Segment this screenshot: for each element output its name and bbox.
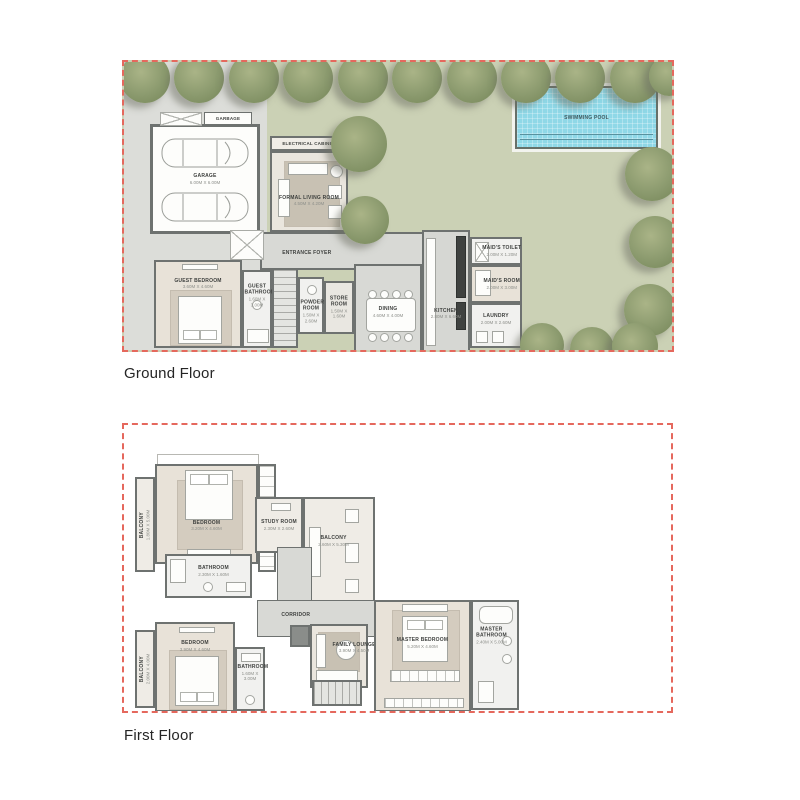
room-name: ELECTRICAL CABINET bbox=[282, 141, 335, 146]
room-maids-room: MAID'S ROOM 2.00M X 3.00M bbox=[470, 265, 522, 303]
room-balcony-bottom: BALCONY 2.00M X 4.00M bbox=[135, 630, 155, 708]
headboard-shelf bbox=[402, 604, 448, 612]
room-name: MASTER BEDROOM bbox=[397, 637, 448, 643]
room-dims: 2.40M X 5.00M bbox=[470, 639, 512, 645]
room-label: BALCONY 1.80M X 5.00M bbox=[139, 509, 151, 540]
room-bathroom-top: BATHROOM 2.30M X 1.60M bbox=[165, 554, 252, 598]
pool-lane-line bbox=[520, 134, 653, 135]
tree-icon bbox=[447, 60, 497, 103]
pillow bbox=[183, 330, 200, 340]
side-table bbox=[330, 165, 343, 178]
room-label: DINING 4.60M X 4.00M bbox=[373, 306, 404, 318]
room-garage: GARAGE 6.00M X 6.00M bbox=[150, 124, 260, 234]
room-label: BEDROOM 3.90M X 4.60M bbox=[180, 640, 211, 652]
room-label: GUEST BEDROOM 3.60M X 4.60M bbox=[174, 278, 221, 290]
first-floor-caption: First Floor bbox=[124, 727, 194, 744]
room-family-lounge: FAMILY LOUNGE 3.90M X 4.50M bbox=[310, 624, 368, 688]
room-kitchen: KITCHEN 2.80M X 6.60M bbox=[422, 230, 470, 352]
room-label: MASTER BATHROOM 2.40M X 5.00M bbox=[470, 626, 512, 645]
tree-icon bbox=[392, 60, 442, 103]
room-name: BATHROOM bbox=[238, 664, 269, 670]
ff-stairs bbox=[312, 680, 362, 706]
room-dims: 3.90M X 4.50M bbox=[333, 648, 376, 654]
room-label: STORE ROOM 1.50M X 1.60M bbox=[327, 295, 352, 320]
room-name: FORMAL LIVING ROOM bbox=[279, 195, 339, 201]
desk bbox=[271, 503, 291, 511]
room-label: GARAGE 6.00M X 6.00M bbox=[190, 173, 221, 185]
chair bbox=[392, 290, 401, 299]
room-name: FAMILY LOUNGE bbox=[333, 641, 376, 647]
room-name: MAID'S TOILET bbox=[482, 245, 521, 251]
room-dims: 2.60M X 5.30M bbox=[318, 542, 349, 548]
room-label: POWDER ROOM 1.50M X 2.60M bbox=[300, 300, 321, 325]
washer bbox=[476, 331, 488, 343]
tree-icon bbox=[229, 60, 279, 103]
room-label: BATHROOM 1.60M X 3.00M bbox=[238, 664, 263, 682]
room-name: KITCHEN bbox=[434, 307, 458, 313]
pool-label: SWIMMING POOL bbox=[564, 114, 609, 121]
chair bbox=[380, 333, 389, 342]
bed bbox=[185, 470, 233, 520]
tree-icon bbox=[625, 147, 674, 201]
room-dims: 3.60M X 4.60M bbox=[174, 284, 221, 290]
room-store: STORE ROOM 1.50M X 1.60M bbox=[324, 281, 354, 334]
room-label: FAMILY LOUNGE 3.90M X 4.50M bbox=[333, 641, 376, 653]
shower bbox=[478, 681, 494, 703]
tree-icon bbox=[629, 216, 674, 268]
room-master-bathroom: MASTER BATHROOM 2.40M X 5.00M bbox=[471, 600, 519, 710]
bathtub bbox=[479, 606, 513, 624]
dresser bbox=[182, 264, 218, 270]
armchair bbox=[328, 205, 342, 219]
kitchen-cabinets bbox=[456, 236, 466, 298]
pillow bbox=[197, 692, 214, 702]
pillow bbox=[190, 474, 209, 485]
room-name: ENTRANCE FOYER bbox=[282, 249, 331, 255]
room-label: LAUNDRY 2.00M X 2.60M bbox=[481, 313, 512, 325]
bed bbox=[175, 656, 219, 706]
entrance-canopy bbox=[230, 230, 264, 260]
pillow bbox=[425, 620, 443, 630]
room-dining: DINING 4.60M X 4.00M bbox=[354, 264, 422, 352]
room-dims: 4.60M X 4.00M bbox=[373, 313, 404, 319]
room-dims: 2.30M X 1.60M bbox=[198, 572, 229, 578]
bench bbox=[390, 670, 460, 682]
room-label: MAID'S ROOM 2.00M X 3.00M bbox=[484, 278, 520, 290]
tree-icon bbox=[520, 323, 564, 352]
tree-icon bbox=[283, 60, 333, 103]
room-dims: 1.60M X 3.00M bbox=[238, 670, 263, 682]
toilet bbox=[245, 695, 255, 705]
gf-stairs bbox=[272, 268, 298, 348]
chair bbox=[404, 290, 413, 299]
room-dims: 6.00M X 6.00M bbox=[190, 179, 221, 185]
tree-icon bbox=[570, 327, 614, 352]
room-label: GUEST BATHROOM 1.60M X 3.00M bbox=[245, 283, 270, 308]
room-label: ENTRANCE FOYER bbox=[282, 249, 331, 256]
room-dims: 2.00M X 2.60M bbox=[481, 320, 512, 326]
room-dims: 2.80M X 6.60M bbox=[431, 314, 462, 320]
room-name: BEDROOM bbox=[181, 640, 209, 646]
room-bathroom-bottom: BATHROOM 1.60M X 3.00M bbox=[235, 647, 265, 711]
room-dims: 4.50M X 4.20M bbox=[279, 201, 339, 207]
room-bedroom-bottom: BEDROOM 3.90M X 4.60M bbox=[155, 622, 235, 712]
room-label: FORMAL LIVING ROOM 4.50M X 4.20M bbox=[279, 195, 339, 207]
sofa bbox=[316, 634, 326, 668]
vanity bbox=[226, 582, 246, 592]
chair bbox=[368, 333, 377, 342]
room-label: KITCHEN 2.80M X 6.60M bbox=[431, 307, 462, 319]
room-label: STUDY ROOM 2.30M X 2.60M bbox=[261, 519, 297, 531]
tree-icon bbox=[331, 116, 387, 172]
room-name: MAID'S ROOM bbox=[484, 278, 520, 284]
room-label: BEDROOM 3.20M X 4.60M bbox=[191, 519, 222, 531]
pillow bbox=[180, 692, 197, 702]
pillow bbox=[407, 620, 425, 630]
room-name: BATHROOM bbox=[198, 565, 229, 571]
room-name: GUEST BEDROOM bbox=[174, 278, 221, 284]
room-dims: 2.00M X 1.20M bbox=[482, 251, 521, 257]
room-master-bedroom: MASTER BEDROOM 5.20M X 4.60M bbox=[374, 600, 471, 712]
tree-icon bbox=[338, 60, 388, 103]
first-floor-plan: BALCONY 1.80M X 5.00M BEDROOM 3.20M X 4.… bbox=[122, 423, 673, 713]
sink bbox=[307, 285, 317, 295]
room-name: POWDER ROOM bbox=[300, 300, 324, 313]
chair bbox=[380, 290, 389, 299]
tree-icon bbox=[341, 196, 389, 244]
sink bbox=[502, 654, 512, 664]
bed bbox=[178, 296, 222, 344]
room-name: BALCONY bbox=[139, 656, 145, 682]
shower bbox=[170, 559, 186, 583]
room-label: BALCONY 2.60M X 5.30M bbox=[318, 535, 349, 547]
room-dims: 1.50M X 2.60M bbox=[300, 313, 321, 325]
car-icon bbox=[159, 135, 251, 171]
room-dims: 3.20M X 4.60M bbox=[191, 526, 222, 532]
room-name: BEDROOM bbox=[193, 519, 221, 525]
toilet bbox=[203, 582, 213, 592]
room-dims: 1.50M X 1.60M bbox=[327, 308, 352, 320]
room-name: GARBAGE bbox=[216, 116, 240, 121]
room-name: GARAGE bbox=[193, 173, 216, 179]
room-laundry: LAUNDRY 2.00M X 2.60M bbox=[470, 303, 522, 348]
room-name: MASTER BATHROOM bbox=[476, 626, 507, 639]
room-name: CORRIDOR bbox=[281, 612, 310, 618]
wardrobe-cabinets bbox=[384, 698, 464, 708]
pillow bbox=[209, 474, 228, 485]
bathtub bbox=[247, 329, 269, 343]
room-name: BALCONY bbox=[320, 535, 346, 541]
room-guest-bathroom: GUEST BATHROOM 1.60M X 3.00M bbox=[242, 270, 272, 348]
room-powder: POWDER ROOM 1.50M X 2.60M bbox=[298, 277, 324, 334]
room-label: BALCONY 2.00M X 4.00M bbox=[139, 654, 151, 685]
room-balcony-right: BALCONY 2.60M X 5.30M bbox=[303, 497, 375, 602]
room-label: MASTER BEDROOM 5.20M X 4.60M bbox=[397, 637, 448, 649]
room-name: LAUNDRY bbox=[483, 313, 509, 319]
sofa bbox=[288, 163, 328, 175]
room-name: GUEST BATHROOM bbox=[245, 283, 276, 296]
room-label: MAID'S TOILET 2.00M X 1.20M bbox=[482, 245, 521, 257]
room-study: STUDY ROOM 2.30M X 2.60M bbox=[255, 497, 303, 553]
room-name: BALCONY bbox=[139, 511, 145, 537]
chair bbox=[404, 333, 413, 342]
room-formal-living: FORMAL LIVING ROOM 4.50M X 4.20M bbox=[270, 151, 348, 232]
shaft bbox=[290, 625, 310, 647]
room-maids-toilet: MAID'S TOILET 2.00M X 1.20M bbox=[470, 237, 522, 265]
pillow bbox=[200, 330, 217, 340]
room-dims: 2.00M X 4.00M bbox=[145, 654, 151, 685]
chair bbox=[392, 333, 401, 342]
floor-plan-sheet: SWIMMING POOL GARBAGE GARAGE bbox=[0, 0, 800, 800]
ground-floor-plan: SWIMMING POOL GARBAGE GARAGE bbox=[122, 60, 674, 352]
dresser bbox=[179, 627, 215, 633]
pool-lane-line bbox=[520, 139, 653, 140]
room-dims: 1.80M X 5.00M bbox=[145, 509, 151, 540]
room-dims: 1.60M X 3.00M bbox=[245, 296, 270, 308]
room-bedroom-top: BEDROOM 3.20M X 4.60M bbox=[155, 464, 258, 564]
room-guest-bedroom: GUEST BEDROOM 3.60M X 4.60M bbox=[154, 260, 242, 348]
room-name: DINING bbox=[379, 306, 398, 312]
room-name: STUDY ROOM bbox=[261, 519, 297, 525]
room-label: BATHROOM 2.30M X 1.60M bbox=[198, 565, 229, 577]
room-dims: 2.00M X 3.00M bbox=[484, 284, 520, 290]
room-dims: 3.90M X 4.60M bbox=[180, 647, 211, 653]
chair bbox=[368, 290, 377, 299]
room-label: CORRIDOR bbox=[281, 612, 310, 619]
room-dims: 2.30M X 2.60M bbox=[261, 525, 297, 531]
room-name: STORE ROOM bbox=[330, 295, 348, 308]
vanity bbox=[241, 653, 261, 662]
room-balcony-top: BALCONY 1.80M X 5.00M bbox=[135, 477, 155, 572]
planter bbox=[345, 509, 359, 523]
car-icon bbox=[159, 189, 251, 225]
ground-floor-caption: Ground Floor bbox=[124, 365, 215, 382]
garage-canopy bbox=[160, 112, 202, 126]
room-dims: 5.20M X 4.60M bbox=[397, 643, 448, 649]
kitchen-counter bbox=[426, 238, 436, 346]
dryer bbox=[492, 331, 504, 343]
planter bbox=[345, 579, 359, 593]
